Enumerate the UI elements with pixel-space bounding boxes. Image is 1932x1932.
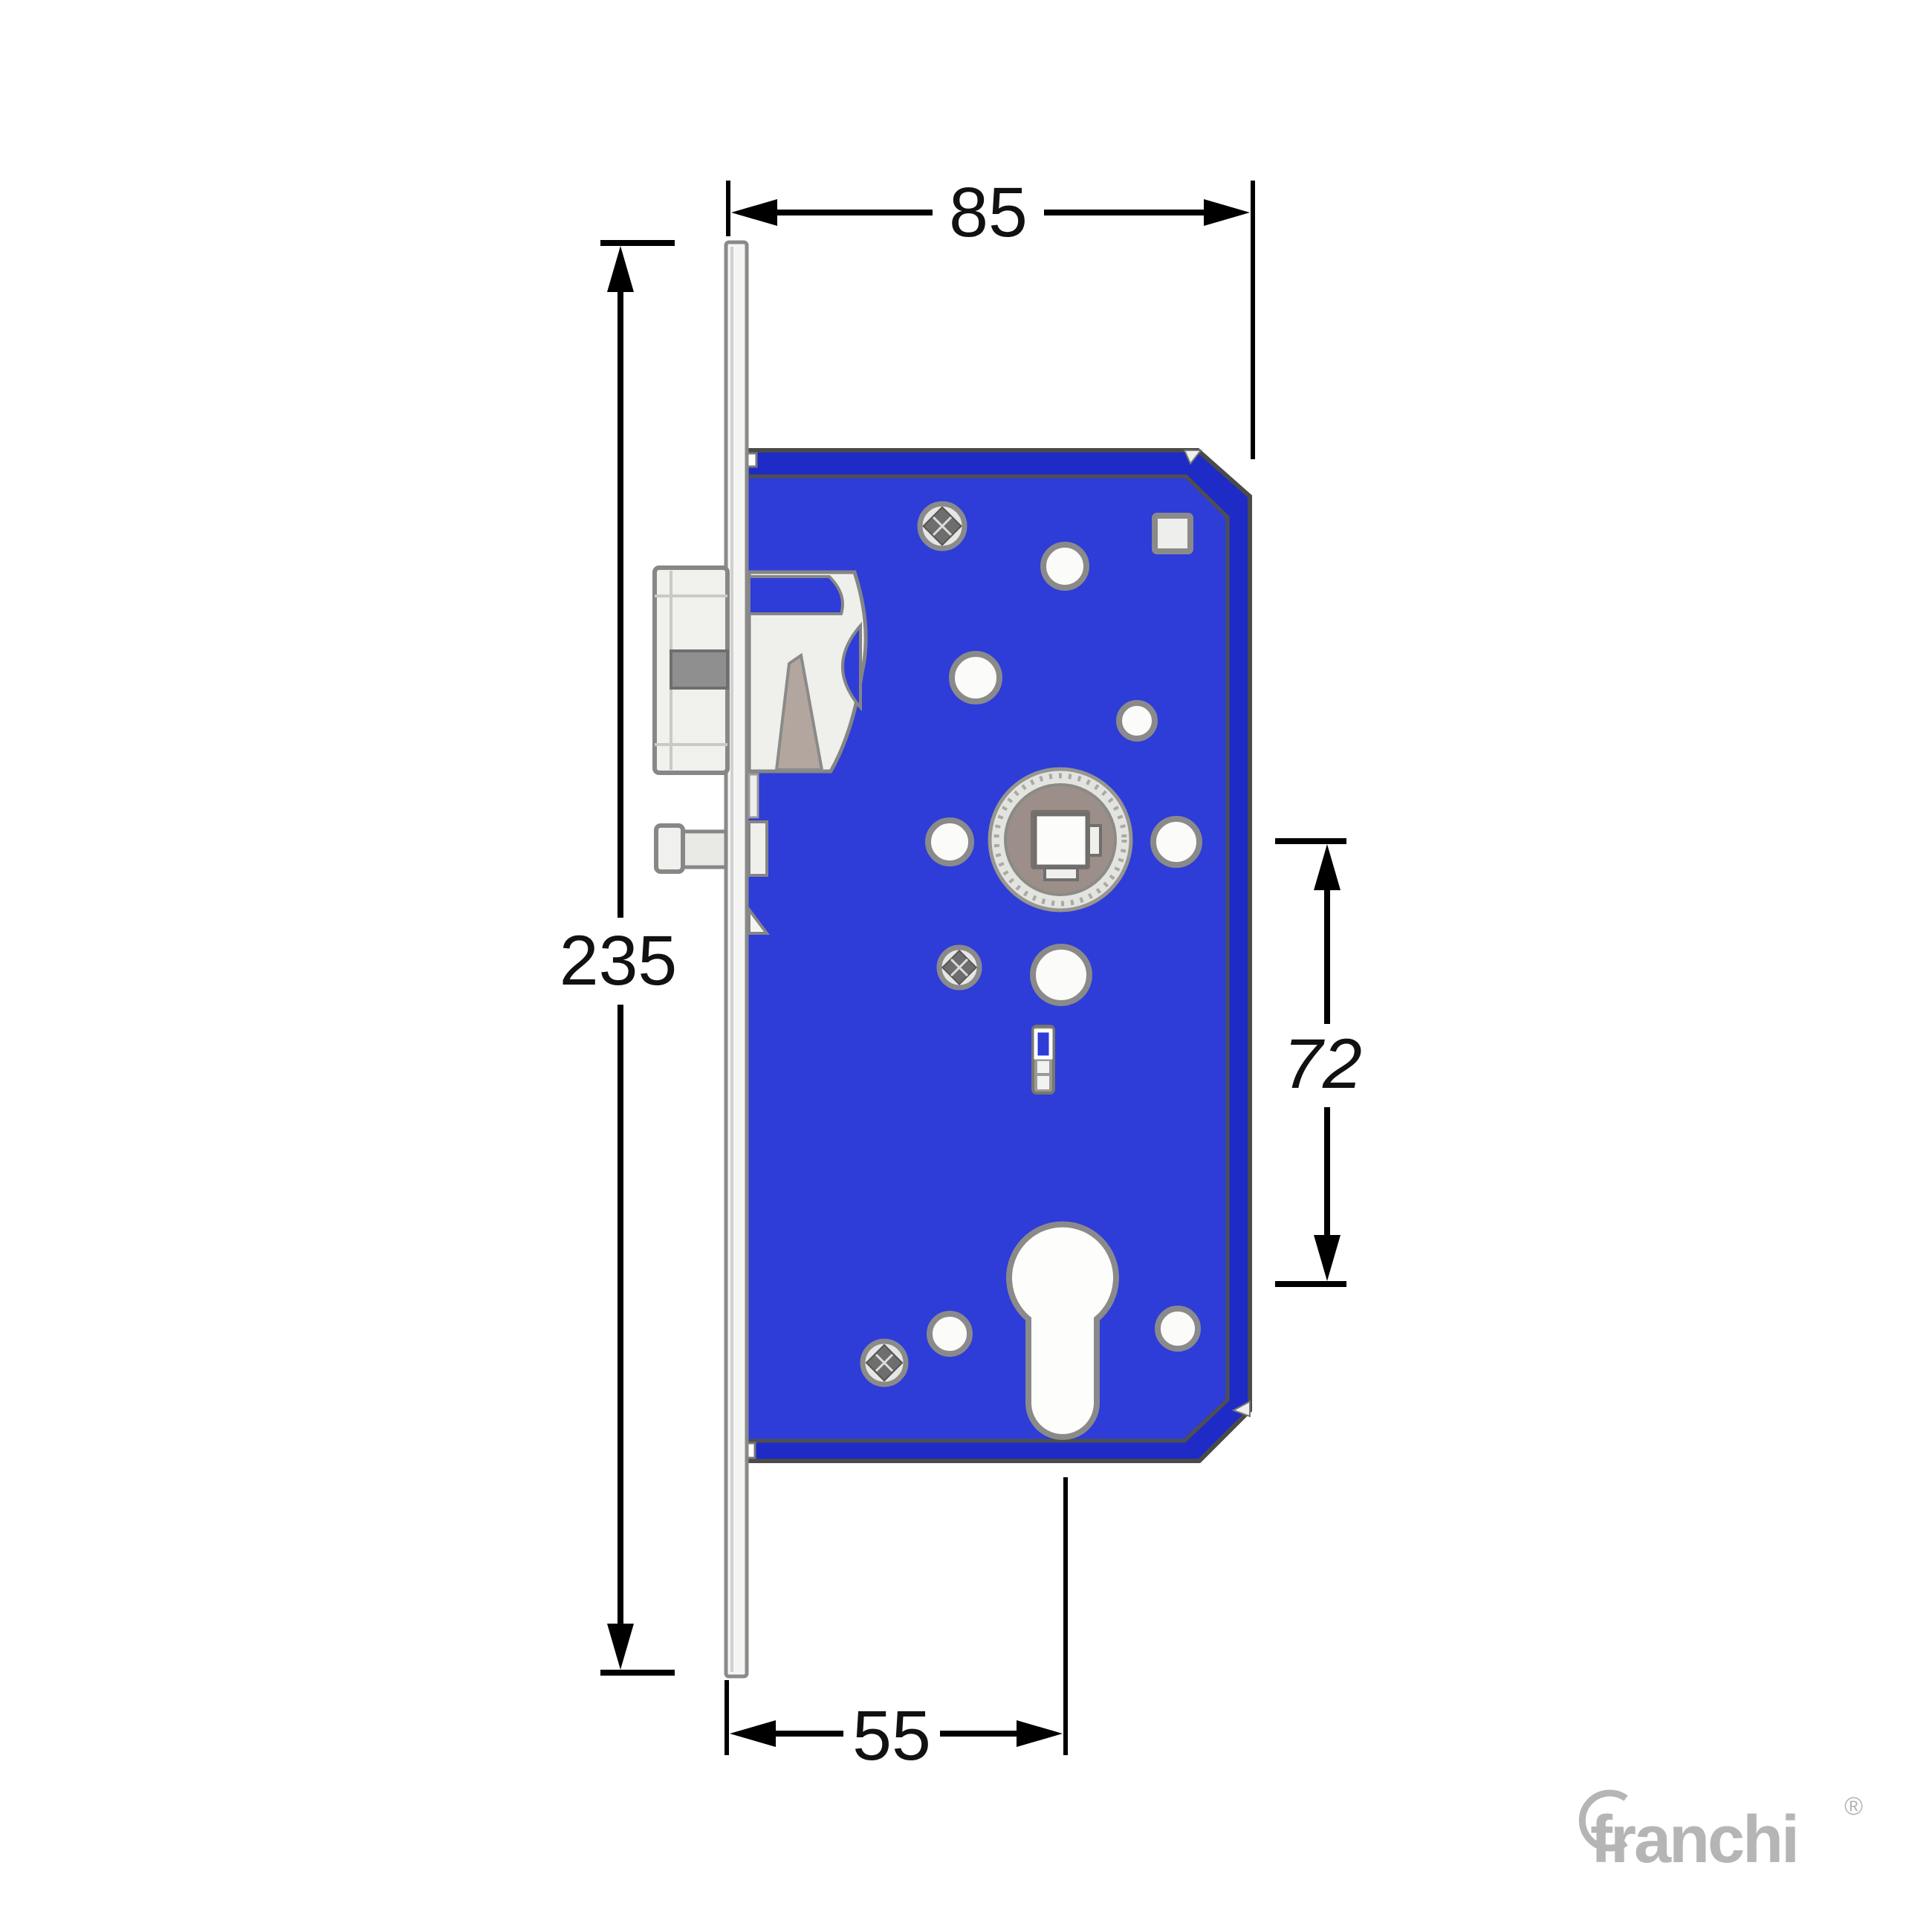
dimension-85-label: 85 — [949, 173, 1028, 252]
registered-mark: ® — [1844, 1792, 1863, 1821]
spindle-hub — [990, 769, 1131, 910]
dimension-72: 72 — [1275, 841, 1362, 1284]
arrowhead-left-icon — [731, 199, 777, 226]
guide-sliver — [749, 774, 758, 817]
arrowhead-right-icon — [1204, 199, 1250, 226]
hole-left-of-hub — [928, 820, 971, 863]
faceplate — [726, 242, 747, 1676]
dimension-235: 235 — [560, 243, 678, 1673]
screw-top-icon — [920, 504, 965, 548]
hub-clip-right — [1089, 826, 1100, 855]
hole-right-of-cylinder — [1158, 1309, 1198, 1349]
screw-bottom-icon — [863, 1341, 906, 1384]
status-slot-window — [1033, 1026, 1054, 1093]
square-hole-top-right — [1155, 516, 1190, 551]
hub-clip-bottom — [1045, 868, 1077, 880]
dimension-85: 85 — [728, 173, 1253, 459]
arrowhead-up-icon — [1314, 844, 1341, 890]
arrowhead-left-icon — [730, 1720, 776, 1747]
hole-below-hub — [1033, 947, 1089, 1003]
screw-middle-icon — [939, 947, 979, 988]
arrowhead-up-icon — [607, 246, 634, 292]
latch-bolt — [655, 568, 727, 773]
arrowhead-right-icon — [1017, 1720, 1063, 1747]
arrowhead-down-icon — [607, 1624, 634, 1670]
dimension-235-label: 235 — [560, 921, 678, 1000]
dimension-55: 55 — [727, 1477, 1066, 1775]
arrowhead-down-icon — [1314, 1235, 1341, 1281]
faceplate-strip — [726, 242, 747, 1676]
latch-cavity-pocket — [749, 577, 843, 614]
hole-left-of-cylinder — [930, 1314, 970, 1354]
latch-bolt-dark-band — [671, 651, 727, 688]
hole-right-of-hub — [1153, 819, 1199, 865]
logo-wordmark: franchi — [1590, 1803, 1798, 1877]
lock-technical-drawing-page: 85 235 72 55 franchi ® — [0, 0, 1932, 1932]
dimension-55-label: 55 — [852, 1696, 931, 1775]
lock-technical-drawing: 85 235 72 55 franchi ® — [0, 0, 1932, 1932]
deadbolt-shaft — [681, 832, 726, 867]
hole-small-right — [1119, 703, 1155, 739]
deadbolt-slot — [749, 822, 767, 875]
dimension-72-label: 72 — [1283, 1025, 1362, 1103]
hole-top-center — [1043, 545, 1086, 588]
hole-mid-upper — [952, 654, 999, 701]
deadbolt-head — [656, 826, 683, 872]
hub-square-hole — [1035, 814, 1087, 866]
deadbolt — [656, 774, 767, 933]
franchi-logo: franchi ® — [1582, 1792, 1863, 1877]
